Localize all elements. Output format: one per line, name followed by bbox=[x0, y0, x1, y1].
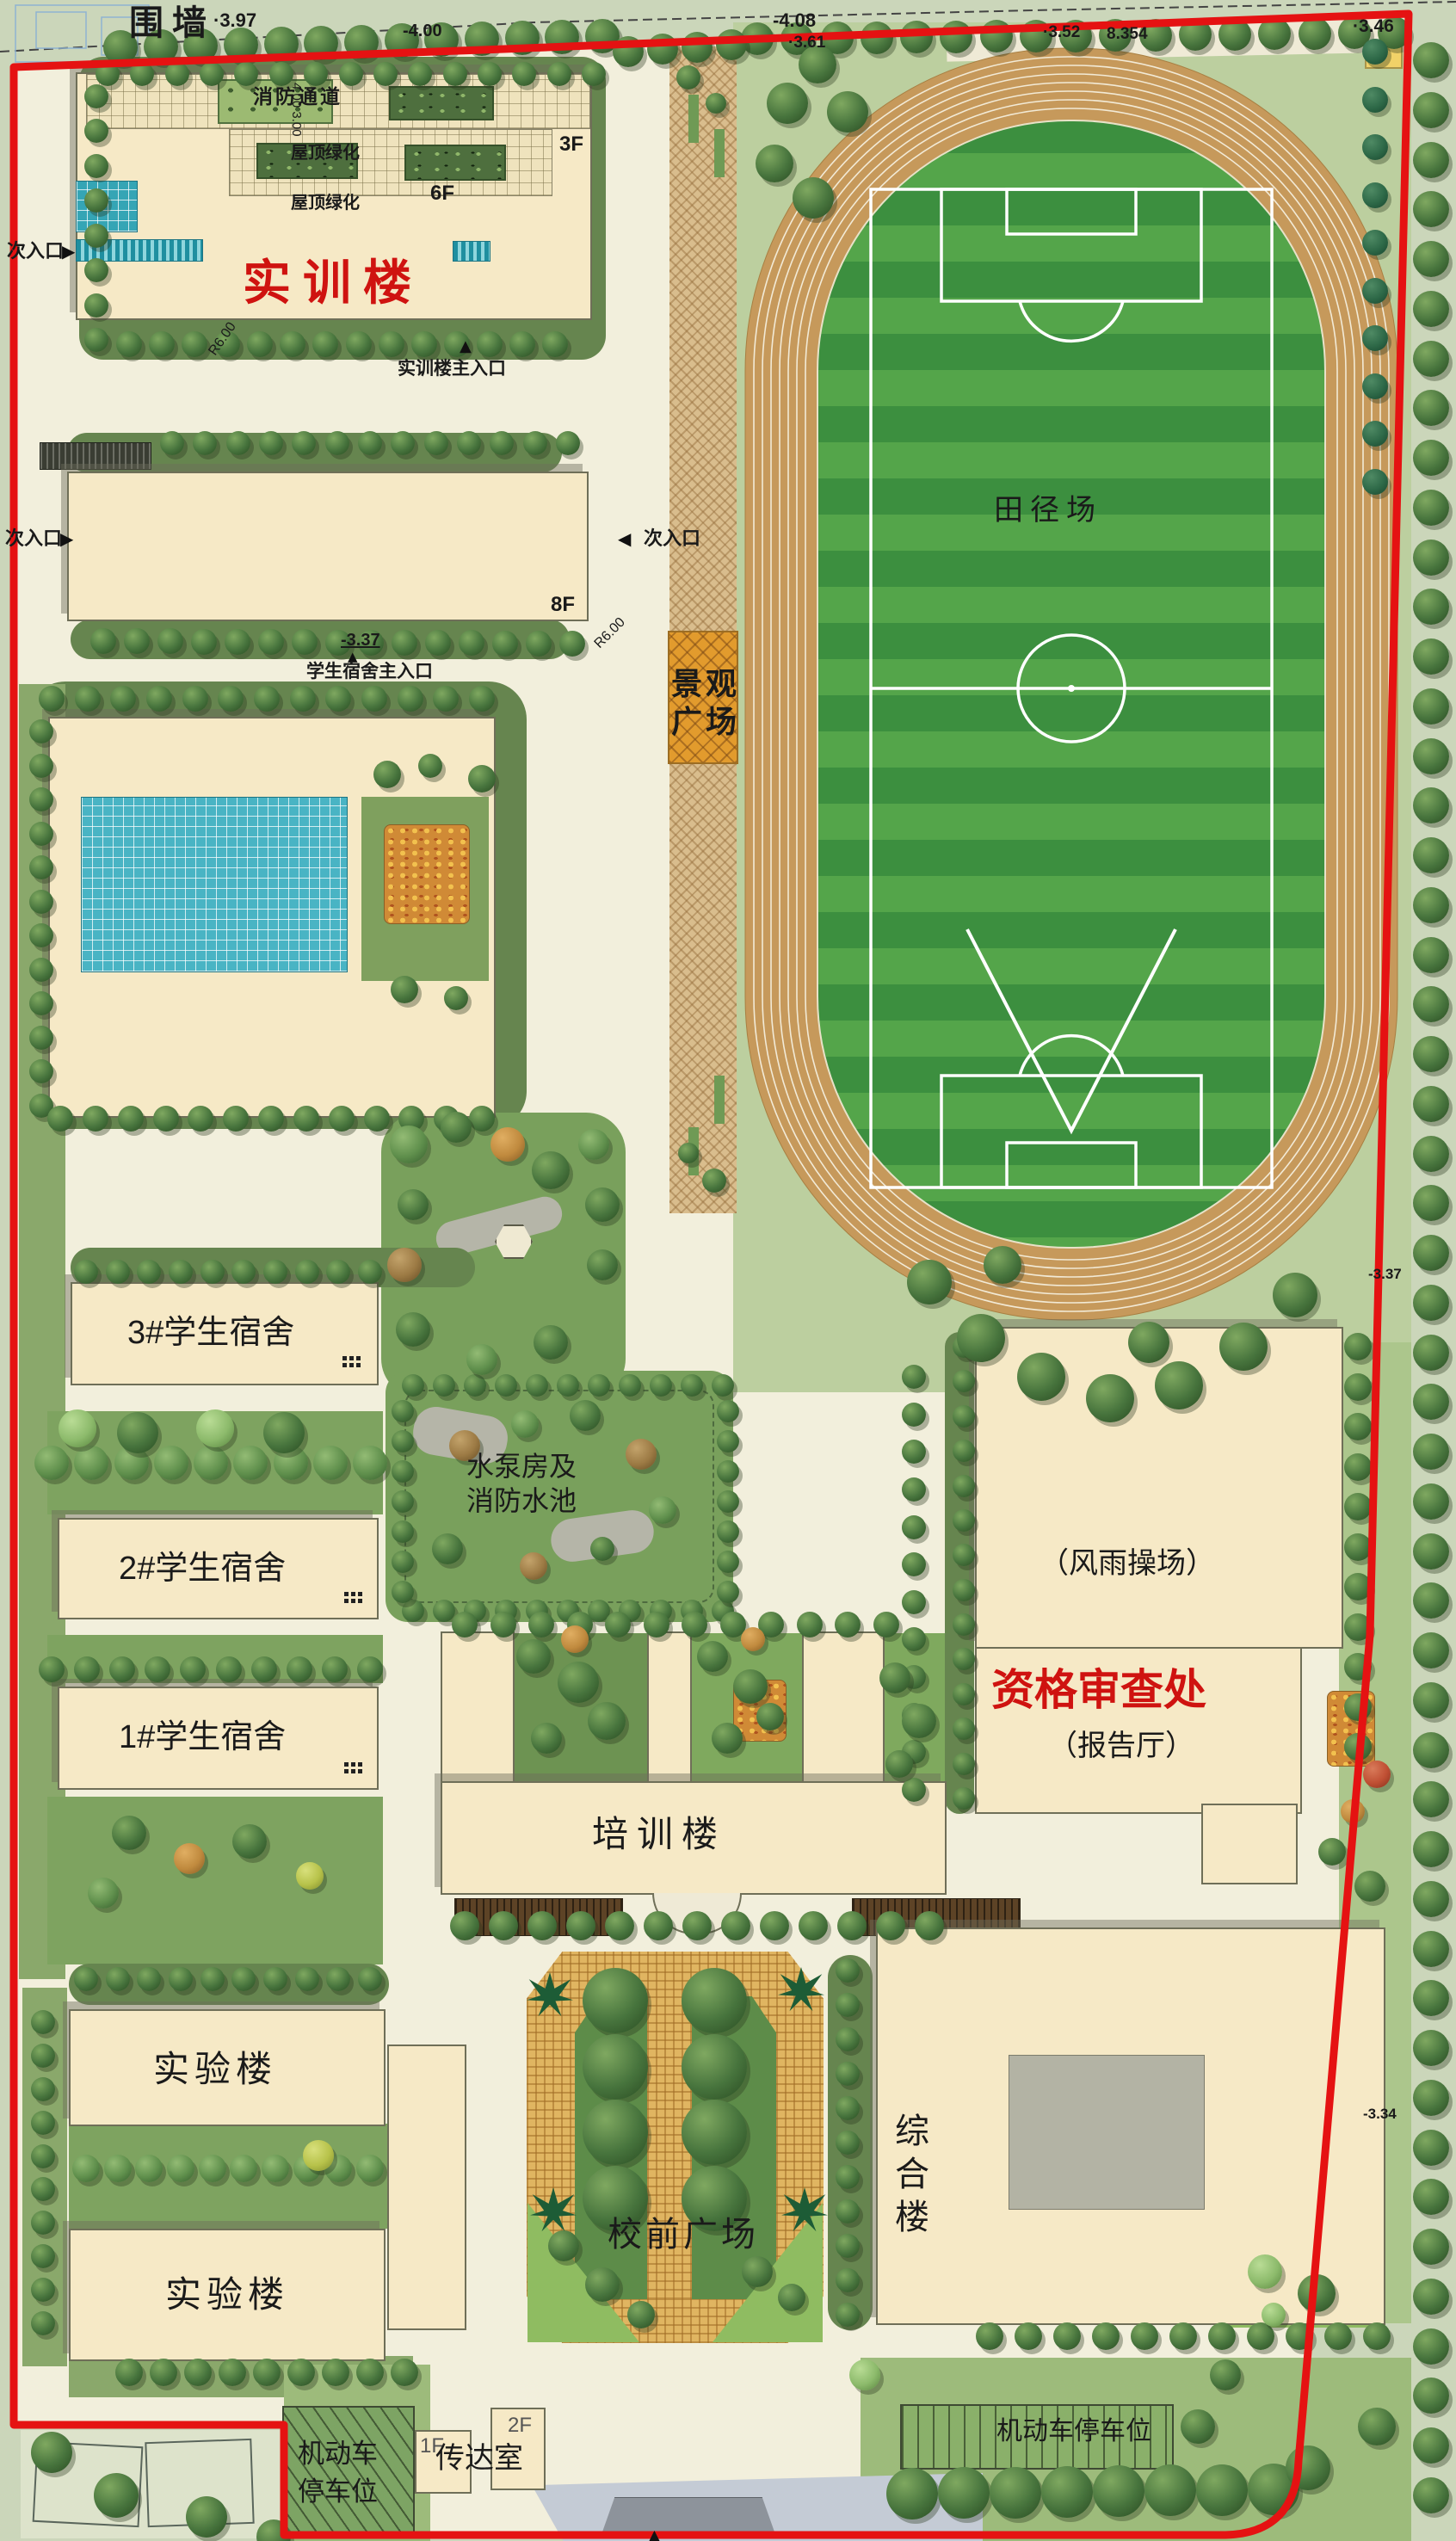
tree-icon bbox=[490, 1612, 516, 1637]
tree-icon bbox=[835, 1612, 861, 1637]
tree-icon bbox=[583, 1968, 648, 2033]
tree-icon bbox=[626, 1439, 657, 1470]
tree-icon bbox=[137, 1967, 161, 1991]
tree-icon bbox=[295, 1967, 319, 1991]
tree-icon bbox=[861, 22, 893, 54]
tree-icon bbox=[836, 2062, 860, 2086]
tree-icon bbox=[793, 177, 834, 219]
tree-icon bbox=[702, 1169, 726, 1193]
tree-icon bbox=[231, 1967, 256, 1991]
tree-icon bbox=[1344, 1653, 1372, 1681]
tree-icon bbox=[1286, 2322, 1313, 2350]
tree-icon bbox=[104, 2155, 132, 2182]
tree-icon bbox=[196, 1409, 234, 1447]
tree-icon bbox=[1413, 887, 1449, 923]
entrance-arrow-icon: ◀ bbox=[618, 528, 631, 549]
tree-icon bbox=[233, 1446, 268, 1480]
lecture-hall-label: （报告厅） bbox=[1048, 1731, 1194, 1762]
tree-icon bbox=[145, 1656, 170, 1682]
tree-icon bbox=[31, 2211, 55, 2235]
tree-icon bbox=[836, 1993, 860, 2017]
tree-icon bbox=[1286, 2445, 1330, 2490]
landscape-plaza-label: 景观 bbox=[671, 668, 740, 700]
elevation-label: ·3.61 bbox=[788, 34, 825, 52]
tree-icon bbox=[1041, 2466, 1093, 2518]
tree-icon bbox=[1273, 1273, 1317, 1317]
tree-icon bbox=[1413, 2427, 1449, 2464]
tree-icon bbox=[296, 1862, 324, 1890]
tree-icon bbox=[523, 431, 547, 455]
tree-icon bbox=[29, 890, 53, 914]
tree-icon bbox=[450, 1911, 479, 1940]
tree-icon bbox=[682, 2034, 747, 2100]
tree-icon bbox=[1344, 1413, 1372, 1440]
tree-icon bbox=[778, 2284, 805, 2311]
tree-icon bbox=[1413, 1086, 1449, 1122]
tree-icon bbox=[953, 1613, 975, 1636]
parking-left-label: 停车位 bbox=[298, 2478, 378, 2507]
tree-icon bbox=[1413, 191, 1449, 227]
tree-icon bbox=[361, 686, 387, 712]
tree-icon bbox=[74, 1446, 108, 1480]
tree-icon bbox=[398, 1189, 429, 1220]
tree-icon bbox=[191, 629, 217, 655]
tree-icon bbox=[1169, 2322, 1197, 2350]
tree-icon bbox=[1341, 1799, 1365, 1823]
tree-icon bbox=[682, 1911, 712, 1940]
tree-icon bbox=[379, 331, 404, 357]
tree-icon bbox=[1413, 1434, 1449, 1470]
tree-icon bbox=[706, 93, 726, 114]
tree-icon bbox=[160, 431, 184, 455]
tree-icon bbox=[224, 28, 258, 62]
tree-icon bbox=[712, 1723, 743, 1754]
tree-icon bbox=[717, 1400, 739, 1422]
roof-green-label: 屋顶绿化 bbox=[291, 194, 360, 213]
tree-icon bbox=[358, 431, 382, 455]
tree-icon bbox=[902, 1515, 926, 1539]
tree-icon bbox=[124, 628, 150, 654]
tree-icon bbox=[1262, 2303, 1286, 2327]
tree-icon bbox=[357, 1656, 383, 1682]
tree-icon bbox=[1413, 2279, 1449, 2315]
tree-icon bbox=[1344, 1453, 1372, 1481]
tree-icon bbox=[561, 1625, 589, 1653]
tree-icon bbox=[953, 1683, 975, 1705]
tree-icon bbox=[83, 1106, 108, 1132]
front-plaza-label: 校前广场 bbox=[608, 2217, 759, 2253]
tree-icon bbox=[676, 65, 700, 89]
tree-icon bbox=[1413, 1682, 1449, 1718]
tree-icon bbox=[396, 1312, 430, 1347]
tree-icon bbox=[135, 2155, 163, 2182]
tree-icon bbox=[1299, 17, 1331, 50]
tree-icon bbox=[836, 2268, 860, 2292]
tree-icon bbox=[578, 1129, 609, 1160]
tree-icon bbox=[1413, 92, 1449, 128]
tree-icon bbox=[953, 1718, 975, 1740]
tree-icon bbox=[1344, 1573, 1372, 1600]
tree-icon bbox=[1413, 1335, 1449, 1371]
tree-icon bbox=[263, 1412, 305, 1453]
tree-icon bbox=[902, 1440, 926, 1464]
tree-icon bbox=[346, 331, 372, 357]
tree-icon bbox=[418, 754, 442, 778]
tree-icon bbox=[1413, 1881, 1449, 1917]
tree-icon bbox=[1413, 1533, 1449, 1570]
tree-icon bbox=[1413, 1285, 1449, 1321]
tree-icon bbox=[287, 1656, 312, 1682]
tree-icon bbox=[627, 2301, 655, 2328]
tree-icon bbox=[88, 1878, 119, 1909]
tree-icon bbox=[84, 84, 108, 108]
dimension-text: 4.00 3.00 bbox=[289, 83, 303, 137]
tree-icon bbox=[585, 1187, 620, 1222]
tree-icon bbox=[547, 62, 571, 86]
dorm2-label: 2#学生宿舍 bbox=[119, 1552, 286, 1587]
tree-icon bbox=[392, 1551, 414, 1573]
tree-icon bbox=[902, 1552, 926, 1576]
tree-icon bbox=[953, 1648, 975, 1670]
tree-icon bbox=[1093, 2465, 1144, 2517]
tree-icon bbox=[96, 62, 120, 86]
entrance-arrow-icon: ▲ bbox=[460, 337, 472, 355]
tree-icon bbox=[1128, 1322, 1169, 1363]
tree-icon bbox=[527, 1911, 557, 1940]
elevation-label: -4.00 bbox=[403, 22, 442, 40]
roof-green-label: 屋顶绿化 bbox=[291, 145, 360, 163]
dorm-entrance-elevation: -3.37 bbox=[341, 632, 380, 650]
tree-icon bbox=[154, 1446, 188, 1480]
tree-icon bbox=[184, 2359, 212, 2386]
tree-icon bbox=[511, 1410, 539, 1438]
tree-icon bbox=[1413, 2179, 1449, 2215]
tree-icon bbox=[326, 1260, 350, 1284]
tree-icon bbox=[433, 686, 459, 712]
dorm3-label: 3#学生宿舍 bbox=[127, 1317, 294, 1351]
tree-icon bbox=[902, 1365, 926, 1389]
tree-icon bbox=[1053, 2322, 1081, 2350]
tree-icon bbox=[259, 431, 283, 455]
tree-icon bbox=[717, 1581, 739, 1603]
tree-icon bbox=[1413, 1384, 1449, 1420]
tree-icon bbox=[587, 1249, 618, 1280]
tree-icon bbox=[1131, 2322, 1158, 2350]
tree-icon bbox=[425, 630, 451, 656]
tree-icon bbox=[1362, 230, 1388, 256]
tree-icon bbox=[29, 754, 53, 778]
wall-label: 围墙 bbox=[129, 5, 215, 41]
tree-icon bbox=[304, 26, 338, 60]
tree-icon bbox=[1344, 1613, 1372, 1641]
tree-icon bbox=[1413, 1483, 1449, 1520]
tree-icon bbox=[231, 1260, 256, 1284]
tree-icon bbox=[459, 630, 484, 656]
tree-icon bbox=[353, 1446, 387, 1480]
tree-icon bbox=[31, 2077, 55, 2101]
tree-icon bbox=[556, 431, 580, 455]
tree-icon bbox=[258, 629, 284, 655]
tree-icon bbox=[218, 686, 244, 712]
tree-icon bbox=[682, 1968, 747, 2033]
tree-icon bbox=[940, 21, 972, 53]
tree-icon bbox=[1362, 134, 1388, 160]
tree-icon bbox=[1363, 1761, 1391, 1788]
tree-icon bbox=[441, 1112, 472, 1143]
tree-icon bbox=[836, 2165, 860, 2189]
tree-icon bbox=[112, 1816, 146, 1850]
tree-icon bbox=[72, 2155, 100, 2182]
elevation-label: -4.08 bbox=[773, 10, 816, 30]
tree-icon bbox=[619, 1374, 641, 1397]
dorm1-label: 1#学生宿舍 bbox=[119, 1721, 286, 1755]
tree-icon bbox=[650, 1374, 672, 1397]
tree-icon bbox=[1413, 738, 1449, 774]
tree-icon bbox=[180, 1656, 206, 1682]
tree-icon bbox=[1344, 1333, 1372, 1360]
tree-icon bbox=[1413, 490, 1449, 526]
tree-icon bbox=[219, 2359, 246, 2386]
tree-icon bbox=[1413, 2378, 1449, 2414]
tree-icon bbox=[682, 2100, 747, 2165]
tree-icon bbox=[84, 224, 108, 248]
tree-icon bbox=[1413, 688, 1449, 725]
tree-icon bbox=[1344, 1733, 1372, 1761]
tree-icon bbox=[188, 1106, 213, 1132]
tree-icon bbox=[1181, 2409, 1215, 2444]
tree-icon bbox=[588, 1702, 626, 1740]
training-center-label: 培训楼 bbox=[592, 1816, 726, 1853]
tree-icon bbox=[182, 331, 207, 357]
tree-icon bbox=[31, 2044, 55, 2068]
tree-icon bbox=[468, 765, 496, 793]
tree-icon bbox=[402, 1374, 424, 1397]
tree-icon bbox=[582, 62, 606, 86]
tree-icon bbox=[31, 2010, 55, 2034]
tree-icon bbox=[534, 1325, 568, 1360]
tree-icon bbox=[223, 1106, 249, 1132]
complex-building-label: 综合楼 bbox=[891, 2112, 927, 2242]
tree-icon bbox=[682, 32, 713, 63]
tree-icon bbox=[432, 1533, 463, 1564]
tree-icon bbox=[990, 2467, 1041, 2519]
floor-label-6f: 6F bbox=[430, 182, 454, 204]
tree-icon bbox=[31, 2432, 72, 2473]
tree-icon bbox=[1413, 638, 1449, 675]
tree-icon bbox=[254, 686, 280, 712]
tree-icon bbox=[516, 1639, 551, 1674]
tree-icon bbox=[391, 2359, 418, 2386]
tree-icon bbox=[902, 1627, 926, 1651]
tree-icon bbox=[1413, 1185, 1449, 1221]
tree-icon bbox=[953, 1753, 975, 1775]
tree-icon bbox=[590, 1537, 614, 1561]
tree-icon bbox=[146, 686, 172, 712]
tree-icon bbox=[186, 2496, 227, 2538]
tree-icon bbox=[1413, 291, 1449, 327]
floor-label-3f: 3F bbox=[559, 133, 583, 155]
tree-icon bbox=[232, 1824, 267, 1859]
tree-icon bbox=[490, 1127, 525, 1162]
tree-icon bbox=[797, 1612, 823, 1637]
tree-icon bbox=[424, 431, 448, 455]
tree-icon bbox=[644, 1911, 673, 1940]
tree-icon bbox=[717, 1430, 739, 1452]
tree-icon bbox=[1413, 787, 1449, 823]
tree-icon bbox=[583, 2034, 648, 2100]
tree-icon bbox=[167, 2155, 194, 2182]
tree-icon bbox=[492, 631, 518, 657]
tree-icon bbox=[29, 855, 53, 879]
tree-icon bbox=[717, 1551, 739, 1573]
training-main-entrance-label: 实训楼主入口 bbox=[398, 360, 506, 379]
elevation-label: ·3.97 bbox=[213, 10, 256, 30]
tree-icon bbox=[256, 2519, 291, 2541]
tree-icon bbox=[1362, 325, 1388, 351]
tree-icon bbox=[712, 1374, 734, 1397]
tree-icon bbox=[391, 976, 418, 1003]
tree-icon bbox=[106, 1260, 130, 1284]
tree-icon bbox=[262, 2155, 289, 2182]
tree-icon bbox=[717, 1460, 739, 1483]
tree-icon bbox=[1413, 1732, 1449, 1768]
tree-icon bbox=[109, 1656, 135, 1682]
tree-icon bbox=[398, 686, 423, 712]
tree-icon bbox=[1413, 837, 1449, 873]
tree-icon bbox=[526, 631, 552, 657]
tree-icon bbox=[836, 2199, 860, 2223]
tree-icon bbox=[356, 2155, 384, 2182]
tree-icon bbox=[29, 719, 53, 743]
tree-icon bbox=[339, 62, 363, 86]
tree-icon bbox=[201, 1967, 225, 1991]
tree-icon bbox=[542, 331, 568, 357]
tree-icon bbox=[280, 331, 305, 357]
tree-icon bbox=[879, 1662, 910, 1693]
tree-icon bbox=[247, 331, 273, 357]
tree-icon bbox=[1413, 2328, 1449, 2365]
tree-icon bbox=[1413, 540, 1449, 576]
tree-icon bbox=[29, 787, 53, 811]
tree-icon bbox=[976, 2322, 1003, 2350]
tree-icon bbox=[799, 1911, 828, 1940]
tree-icon bbox=[716, 29, 747, 60]
tree-icon bbox=[520, 1552, 547, 1580]
tree-icon bbox=[253, 2359, 281, 2386]
tree-icon bbox=[433, 1374, 455, 1397]
tree-icon bbox=[1362, 87, 1388, 113]
parking-right-label: 机动车停车位 bbox=[996, 2418, 1151, 2445]
tree-icon bbox=[392, 1430, 414, 1452]
tree-icon bbox=[169, 1967, 193, 1991]
tree-icon bbox=[717, 1520, 739, 1543]
tree-icon bbox=[849, 2359, 880, 2390]
tree-icon bbox=[225, 629, 250, 655]
tree-icon bbox=[356, 2359, 384, 2386]
tree-icon bbox=[292, 431, 316, 455]
tree-icon bbox=[47, 1106, 73, 1132]
floor-label-8f: 8F bbox=[551, 594, 575, 615]
tree-icon bbox=[165, 62, 189, 86]
tree-icon bbox=[387, 1248, 422, 1282]
tree-icon bbox=[312, 331, 338, 357]
tree-icon bbox=[1362, 278, 1388, 304]
tree-icon bbox=[31, 2111, 55, 2135]
tree-icon bbox=[110, 686, 136, 712]
tree-icon bbox=[29, 991, 53, 1015]
tree-icon bbox=[84, 154, 108, 178]
tree-icon bbox=[559, 631, 585, 657]
tree-icon bbox=[194, 1446, 228, 1480]
tree-icon bbox=[613, 36, 644, 67]
tree-icon bbox=[1413, 2477, 1449, 2513]
tree-icon bbox=[902, 1778, 926, 1802]
tree-icon bbox=[469, 1106, 495, 1132]
tree-icon bbox=[902, 1403, 926, 1427]
tree-icon bbox=[1413, 986, 1449, 1022]
pump-house-label: 消防水池 bbox=[466, 1487, 577, 1516]
tree-icon bbox=[169, 1260, 193, 1284]
tree-icon bbox=[836, 2096, 860, 2120]
qualification-office-label: 资格审查处 bbox=[991, 1668, 1206, 1713]
tree-icon bbox=[90, 628, 116, 654]
tree-icon bbox=[1413, 42, 1449, 78]
tree-icon bbox=[230, 2155, 257, 2182]
tree-icon bbox=[528, 1612, 554, 1637]
tree-icon bbox=[392, 630, 417, 656]
tree-icon bbox=[329, 1106, 355, 1132]
tree-icon bbox=[1144, 2464, 1196, 2516]
tree-icon bbox=[682, 1612, 707, 1637]
tree-icon bbox=[495, 1374, 517, 1397]
training-building-label: 实训楼 bbox=[243, 258, 423, 309]
tree-icon bbox=[570, 1400, 601, 1431]
tree-icon bbox=[75, 686, 101, 712]
tree-icon bbox=[605, 1612, 631, 1637]
tree-icon bbox=[313, 1446, 348, 1480]
tree-icon bbox=[84, 328, 108, 352]
tree-icon bbox=[489, 1911, 518, 1940]
tree-icon bbox=[742, 2256, 773, 2287]
tree-icon bbox=[290, 686, 316, 712]
tree-icon bbox=[322, 1656, 348, 1682]
tree-icon bbox=[392, 1490, 414, 1513]
tree-icon bbox=[373, 761, 401, 788]
tree-icon bbox=[1413, 1036, 1449, 1072]
tree-icon bbox=[325, 431, 349, 455]
tree-icon bbox=[953, 1475, 975, 1497]
entrance-arrow-icon: ▶ bbox=[60, 528, 73, 549]
tree-icon bbox=[115, 2359, 143, 2386]
tree-icon bbox=[31, 2144, 55, 2168]
tree-icon bbox=[886, 2468, 938, 2519]
tree-icon bbox=[902, 1477, 926, 1502]
tree-icon bbox=[697, 1641, 728, 1672]
tree-icon bbox=[1362, 373, 1388, 399]
tree-icon bbox=[464, 1374, 486, 1397]
tree-icon bbox=[29, 822, 53, 846]
tree-icon bbox=[953, 1370, 975, 1392]
tree-icon bbox=[408, 62, 432, 86]
tree-icon bbox=[304, 62, 328, 86]
tree-icon bbox=[344, 25, 379, 59]
tree-icon bbox=[469, 686, 495, 712]
tree-icon bbox=[358, 1260, 382, 1284]
tree-icon bbox=[373, 62, 398, 86]
tree-icon bbox=[150, 2359, 177, 2386]
tree-icon bbox=[29, 1026, 53, 1050]
tree-icon bbox=[31, 2278, 55, 2302]
